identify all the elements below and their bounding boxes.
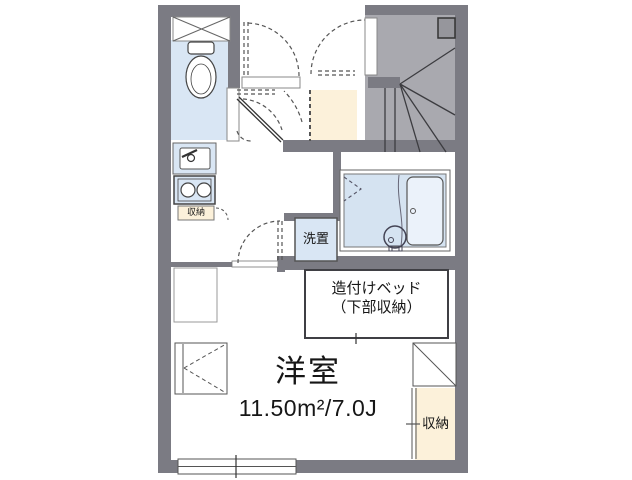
kitchen-storage-door-arc	[216, 208, 228, 220]
stairs-door-leaf	[365, 18, 377, 75]
wall-top-left	[158, 5, 240, 17]
bath-unit	[340, 170, 450, 251]
wall-under-stairs	[283, 140, 468, 152]
washer-space-label: 洗置	[295, 218, 337, 261]
fridge-space-box	[174, 268, 217, 322]
floor-plan: 洗置 造付けベッド （下部収納） 収納 収納 洋室 11.50m²/7.0J	[0, 0, 632, 480]
corner-counter-box	[413, 343, 456, 386]
built-in-bed-label: 造付けベッド （下部収納）	[305, 276, 448, 322]
wall-left	[158, 5, 171, 473]
kitchen-storage-label: 収納	[178, 206, 214, 220]
wall-top-right	[365, 5, 468, 15]
wall-stair-stub	[368, 77, 400, 88]
bottom-window-icon	[178, 455, 296, 478]
toilet-icon	[186, 42, 216, 98]
bed-label-line1: 造付けベッド	[331, 280, 421, 299]
room-door-swing	[238, 221, 282, 263]
room-size-label: 11.50m²/7.0J	[203, 394, 413, 422]
wall-right	[455, 5, 468, 473]
entrance-genkan-floor	[310, 90, 357, 140]
bed-label-line2: （下部収納）	[331, 299, 421, 318]
wall-kitchen-thin	[171, 262, 232, 267]
closet-label: 収納	[415, 388, 456, 460]
room-door-threshold	[232, 261, 278, 267]
entry-step-box	[242, 77, 300, 88]
room-name-label: 洋室	[213, 352, 403, 392]
stairs-corner-post	[438, 18, 455, 38]
bathtub-icon	[407, 177, 443, 245]
